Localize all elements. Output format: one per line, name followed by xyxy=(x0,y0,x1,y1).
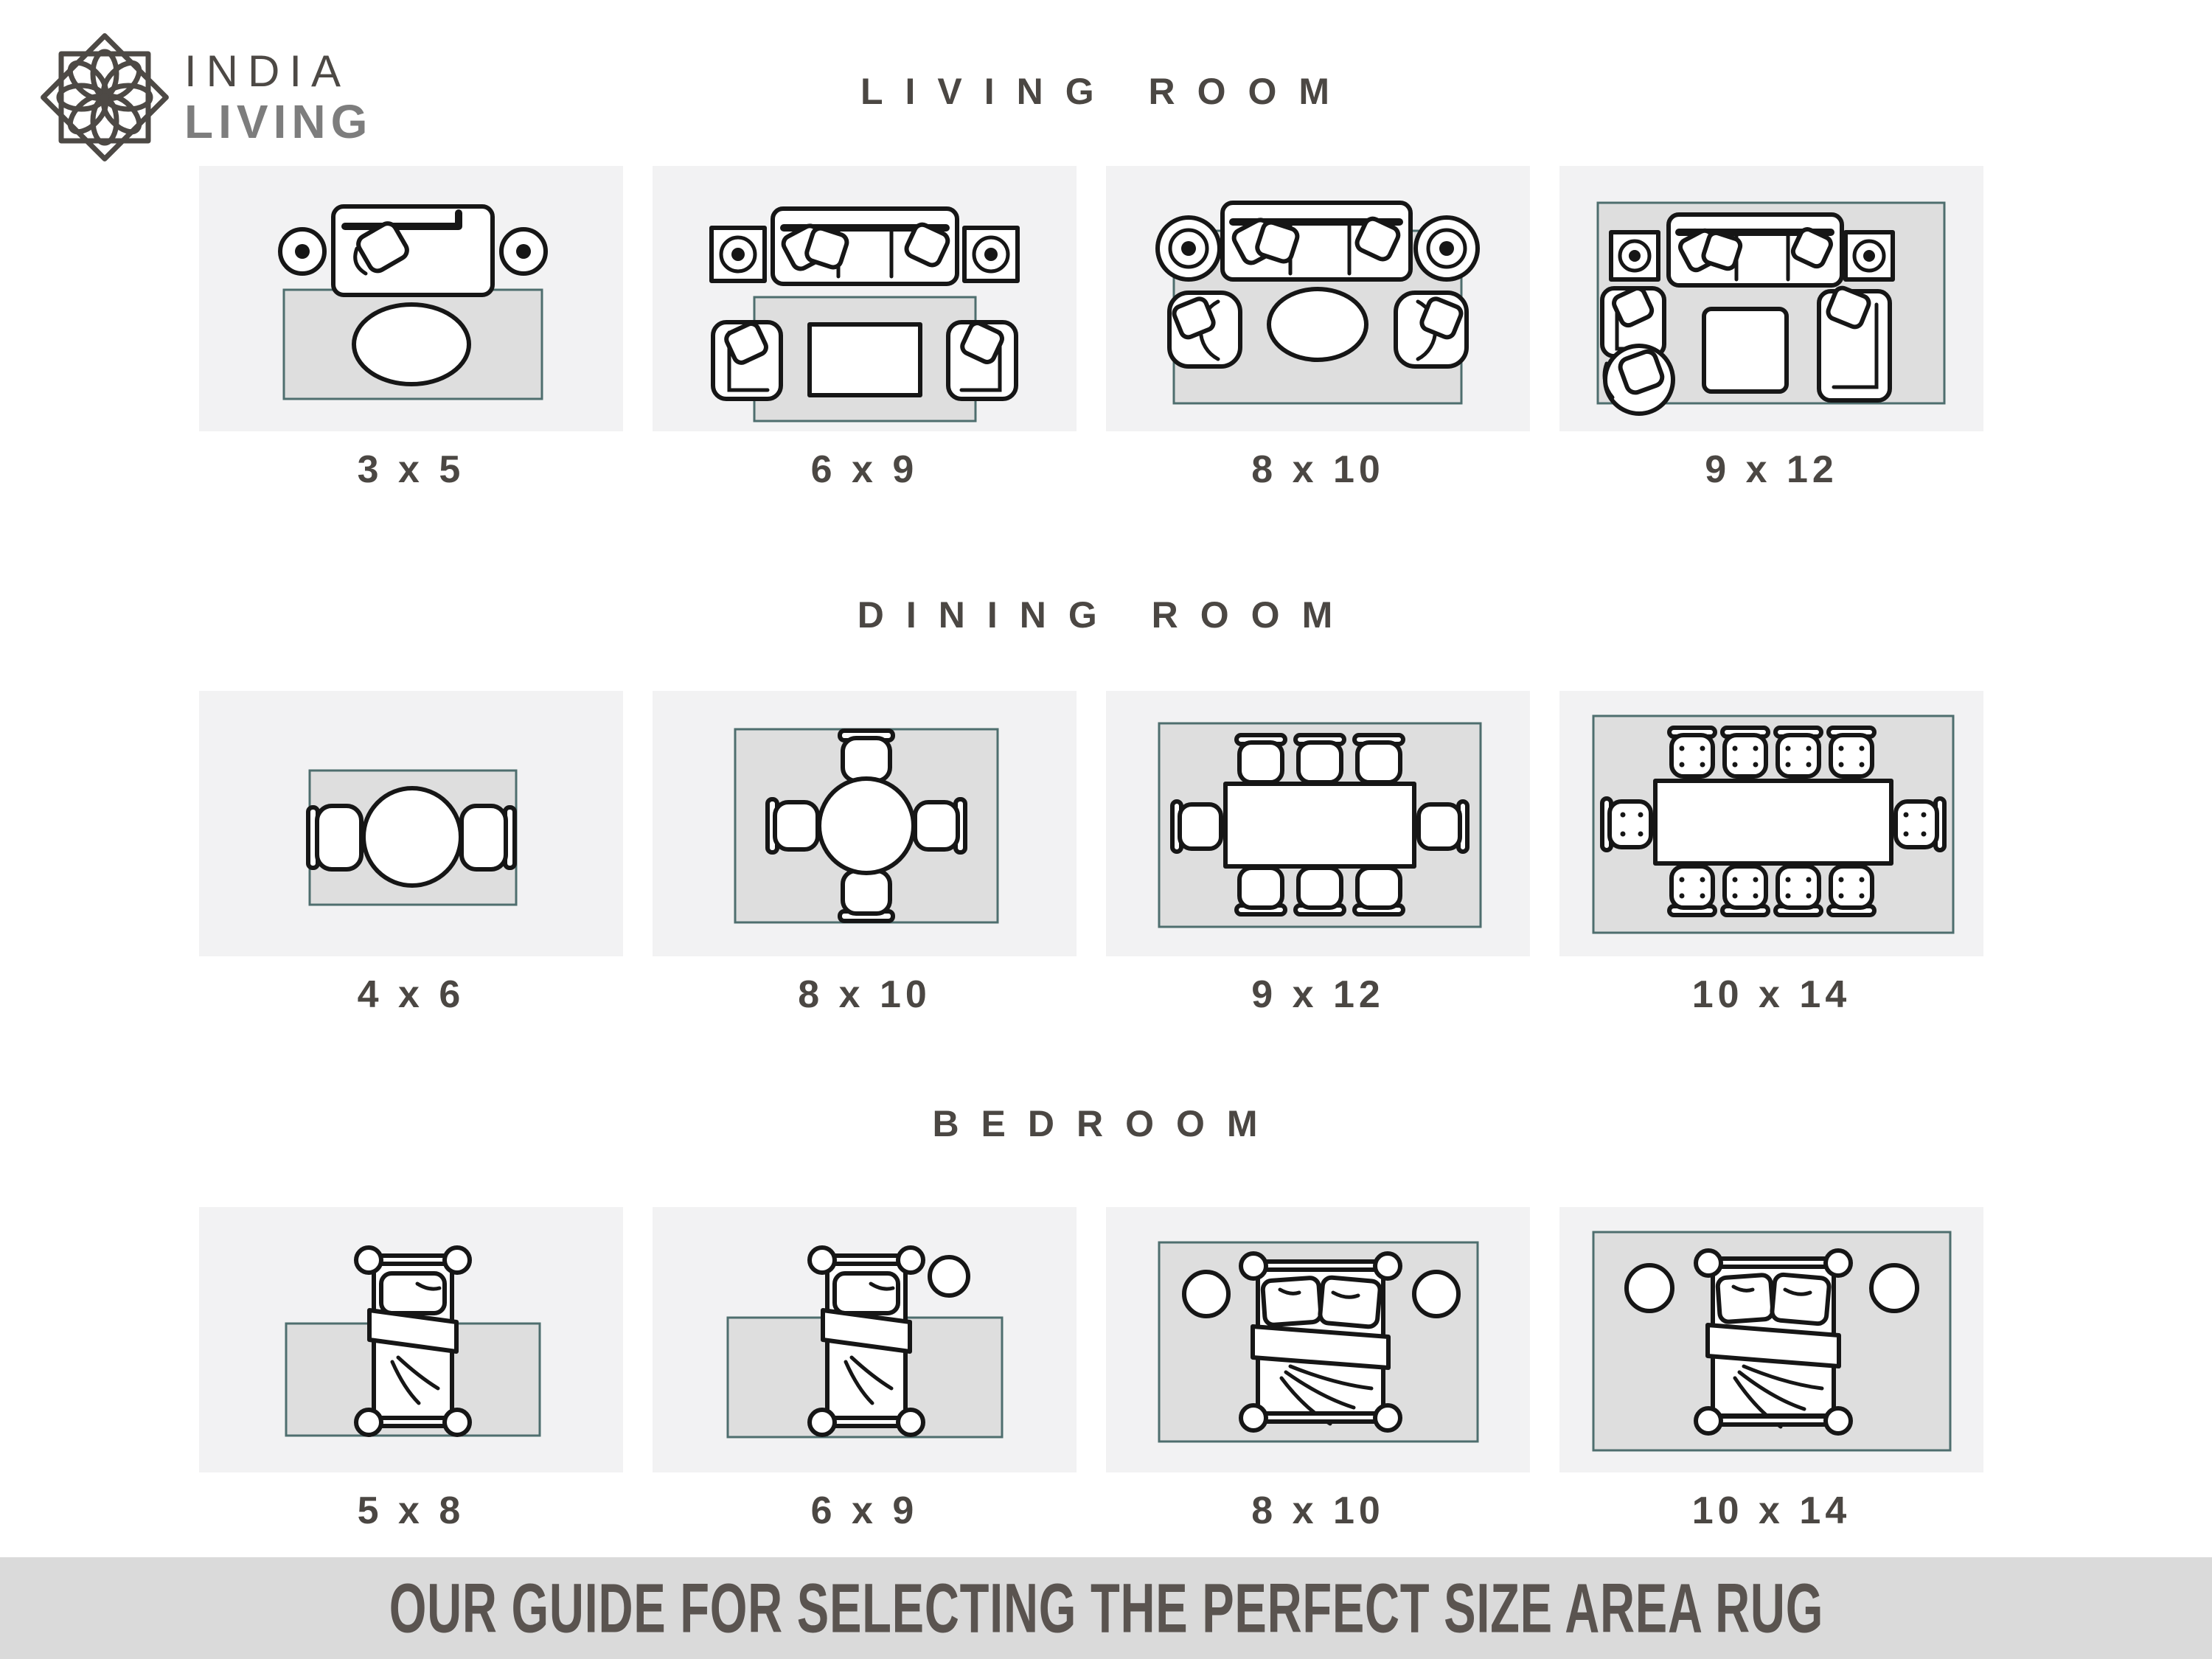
rug-size-card-bedroom-8x10: 8 x 10 xyxy=(1106,1207,1530,1533)
rug-diagram-living-9x12 xyxy=(1559,166,1983,431)
living-room-row: 3 x 5 xyxy=(199,166,1983,492)
sofa-icon xyxy=(1669,215,1842,285)
dining-chair-icon xyxy=(1829,728,1874,776)
dining-chair-icon xyxy=(1722,866,1768,915)
round-nightstand-icon xyxy=(1414,1272,1458,1316)
dining-chair-icon xyxy=(1295,735,1344,782)
square-side-table-icon xyxy=(964,228,1018,281)
rug-diagram-bedroom-10x14 xyxy=(1559,1207,1983,1472)
section-title-bedroom: BEDROOM xyxy=(0,1102,2212,1145)
rug-diagram-living-6x9 xyxy=(653,166,1077,431)
dining-table-icon xyxy=(1225,784,1414,866)
rug-diagram-dining-8x10 xyxy=(653,691,1077,956)
dining-chair-icon xyxy=(1722,728,1768,776)
square-side-table-icon xyxy=(1846,232,1893,279)
rug-size-label: 10 x 14 xyxy=(1559,973,1983,1017)
rug-diagram-dining-9x12 xyxy=(1106,691,1530,956)
dining-room-row: 4 x 6 8 x 10 xyxy=(199,691,1983,1017)
dining-chair-icon xyxy=(1775,866,1821,915)
rug-size-card-living-6x9: 6 x 9 xyxy=(653,166,1077,492)
rug-size-card-living-9x12: 9 x 12 xyxy=(1559,166,1983,492)
pillow-icon xyxy=(835,1273,898,1313)
rug-size-card-bedroom-6x9: 6 x 9 xyxy=(653,1207,1077,1533)
rug-diagram-dining-4x6 xyxy=(199,691,623,956)
round-side-table-icon xyxy=(1158,218,1220,279)
sofa-icon xyxy=(773,209,957,284)
chaise-icon xyxy=(1819,286,1890,400)
rug-size-label: 10 x 14 xyxy=(1559,1489,1983,1533)
rug-size-label: 6 x 9 xyxy=(653,448,1077,492)
twin-bed-icon xyxy=(810,1248,923,1435)
rug-size-label: 8 x 10 xyxy=(653,973,1077,1017)
rug-size-label: 3 x 5 xyxy=(199,448,623,492)
oval-coffee-table-icon xyxy=(354,305,469,384)
rug-size-card-living-8x10: 8 x 10 xyxy=(1106,166,1530,492)
square-side-table-icon xyxy=(712,228,765,281)
square-coffee-table-icon xyxy=(1704,309,1787,392)
sofa-icon xyxy=(1222,203,1411,279)
dining-chair-icon xyxy=(840,731,893,781)
rug-size-label: 5 x 8 xyxy=(199,1489,623,1533)
dining-table-icon xyxy=(1655,781,1891,863)
section-title-dining-room: DINING ROOM xyxy=(0,594,2212,636)
dining-chair-icon xyxy=(1775,728,1821,776)
dining-chair-icon xyxy=(308,806,361,869)
rug-size-label: 9 x 12 xyxy=(1106,973,1530,1017)
dining-chair-icon xyxy=(1419,801,1467,852)
dining-chair-icon xyxy=(1669,866,1715,915)
twin-bed-icon xyxy=(356,1248,470,1435)
dining-chair-icon xyxy=(915,799,965,852)
dining-chair-icon xyxy=(462,806,515,869)
pillow-icon xyxy=(1319,1277,1380,1328)
square-side-table-icon xyxy=(1611,232,1658,279)
footer-tagline: OUR GUIDE FOR SELECTING THE PERFECT SIZE… xyxy=(389,1568,1823,1649)
round-side-table-icon xyxy=(280,229,324,274)
dining-chair-icon xyxy=(1669,728,1715,776)
dining-chair-icon xyxy=(1896,799,1944,850)
loveseat-icon xyxy=(333,206,493,295)
rug-size-card-dining-10x14: 10 x 14 xyxy=(1559,691,1983,1017)
rug-size-card-dining-9x12: 9 x 12 xyxy=(1106,691,1530,1017)
round-side-table-icon xyxy=(1416,218,1478,279)
round-nightstand-icon xyxy=(1871,1265,1917,1311)
dining-chair-icon xyxy=(768,799,818,852)
pillow-icon xyxy=(1717,1275,1773,1323)
rug-size-label: 6 x 9 xyxy=(653,1489,1077,1533)
pillow-icon xyxy=(381,1273,445,1313)
dining-chair-icon xyxy=(1237,868,1285,914)
double-bed-icon xyxy=(1696,1251,1851,1433)
rug-size-card-bedroom-10x14: 10 x 14 xyxy=(1559,1207,1983,1533)
rug-size-card-dining-4x6: 4 x 6 xyxy=(199,691,623,1017)
round-nightstand-icon xyxy=(1627,1265,1672,1311)
dining-chair-icon xyxy=(1602,799,1651,850)
footer-banner: OUR GUIDE FOR SELECTING THE PERFECT SIZE… xyxy=(0,1557,2212,1659)
round-dining-table-icon xyxy=(364,788,461,886)
armchair-icon xyxy=(948,321,1016,399)
dining-chair-icon xyxy=(1172,801,1221,852)
dining-chair-icon xyxy=(840,871,893,921)
oval-coffee-table-icon xyxy=(1269,289,1366,360)
armchair-icon xyxy=(1396,293,1467,366)
rug-diagram-living-3x5 xyxy=(199,166,623,431)
rug-size-label: 8 x 10 xyxy=(1106,448,1530,492)
rug-diagram-bedroom-6x9 xyxy=(653,1207,1077,1472)
pillow-icon xyxy=(1771,1274,1829,1324)
coffee-table-icon xyxy=(810,324,920,395)
round-chair-icon xyxy=(1604,346,1673,414)
round-nightstand-icon xyxy=(930,1257,968,1295)
bedroom-row: 5 x 8 6 x 9 xyxy=(199,1207,1983,1533)
rug-diagram-living-8x10 xyxy=(1106,166,1530,431)
rug-size-card-bedroom-5x8: 5 x 8 xyxy=(199,1207,623,1533)
rug-diagram-bedroom-8x10 xyxy=(1106,1207,1530,1472)
pillow-icon xyxy=(1262,1277,1321,1325)
dining-chair-icon xyxy=(1354,868,1403,914)
round-side-table-icon xyxy=(501,229,546,274)
round-dining-table-icon xyxy=(819,779,914,873)
rug-size-label: 9 x 12 xyxy=(1559,448,1983,492)
rug-diagram-bedroom-5x8 xyxy=(199,1207,623,1472)
dining-chair-icon xyxy=(1295,868,1344,914)
dining-chair-icon xyxy=(1354,735,1403,782)
dining-chair-icon xyxy=(1237,735,1285,782)
dining-chair-icon xyxy=(1829,866,1874,915)
rug-diagram-dining-10x14 xyxy=(1559,691,1983,956)
rug-size-card-living-3x5: 3 x 5 xyxy=(199,166,623,492)
rug-size-card-dining-8x10: 8 x 10 xyxy=(653,691,1077,1017)
armchair-icon xyxy=(713,321,781,399)
double-bed-icon xyxy=(1241,1253,1400,1430)
round-nightstand-icon xyxy=(1184,1272,1228,1316)
armchair-icon xyxy=(1169,293,1240,366)
section-title-living-room: LIVING ROOM xyxy=(0,70,2212,113)
rug-size-label: 8 x 10 xyxy=(1106,1489,1530,1533)
rug-size-label: 4 x 6 xyxy=(199,973,623,1017)
